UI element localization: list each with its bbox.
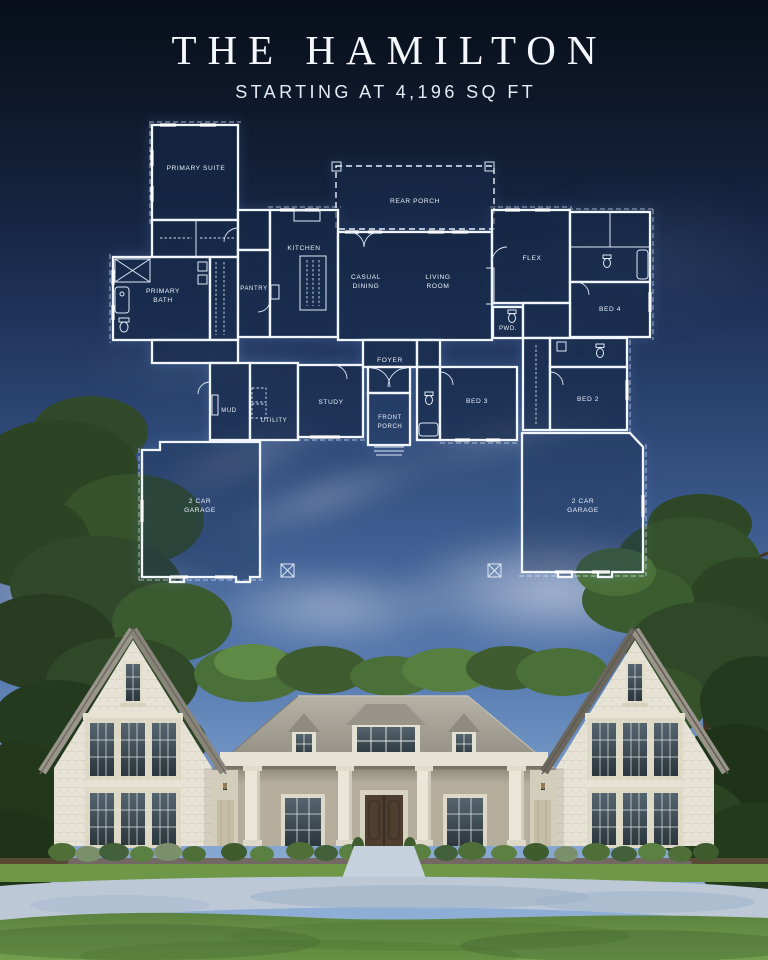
room-label-study: STUDY bbox=[318, 399, 343, 406]
room-label-pwd: PWD. bbox=[499, 326, 517, 332]
room-label-foyer: FOYER bbox=[377, 357, 403, 364]
room-label-rear-porch: REAR PORCH bbox=[390, 198, 440, 205]
room-label-garage-right-2: GARAGE bbox=[567, 507, 599, 514]
room-label-pantry: PANTRY bbox=[240, 286, 267, 292]
room-label-garage-left-1: 2 CAR bbox=[189, 498, 211, 505]
room-label-flex: FLEX bbox=[523, 255, 542, 262]
room-label-primary-bath-1: PRIMARY bbox=[146, 288, 180, 295]
room-label-bed3: BED 3 bbox=[466, 398, 488, 405]
room-label-mud: MUD bbox=[221, 408, 237, 414]
room-label-garage-left-2: GARAGE bbox=[184, 507, 216, 514]
room-label-kitchen: KITCHEN bbox=[287, 245, 320, 252]
room-label-living-room-1: LIVING bbox=[425, 274, 450, 281]
room-label-casual-dining-1: CASUAL bbox=[351, 274, 381, 281]
room-label-utility: UTILITY bbox=[261, 418, 288, 424]
room-label-casual-dining-2: DINING bbox=[353, 283, 380, 290]
room-label-front-porch-2: PORCH bbox=[378, 424, 403, 430]
room-label-front-porch-1: FRONT bbox=[378, 415, 402, 421]
room-label-garage-right-1: 2 CAR bbox=[572, 498, 594, 505]
promo-flyer: THE HAMILTON STARTING AT 4,196 SQ FT bbox=[0, 0, 768, 960]
room-label-primary-suite: PRIMARY SUITE bbox=[167, 165, 226, 172]
room-label-primary-bath-2: BATH bbox=[153, 297, 173, 304]
room-label-bed2: BED 2 bbox=[577, 396, 599, 403]
garage-right-outline bbox=[522, 433, 643, 577]
room-label-bed4: BED 4 bbox=[599, 306, 621, 313]
room-label-living-room-2: ROOM bbox=[427, 283, 450, 290]
floor-plan: PRIMARY SUITE PRIMARY BATH PANTRY KITCHE… bbox=[0, 0, 768, 960]
